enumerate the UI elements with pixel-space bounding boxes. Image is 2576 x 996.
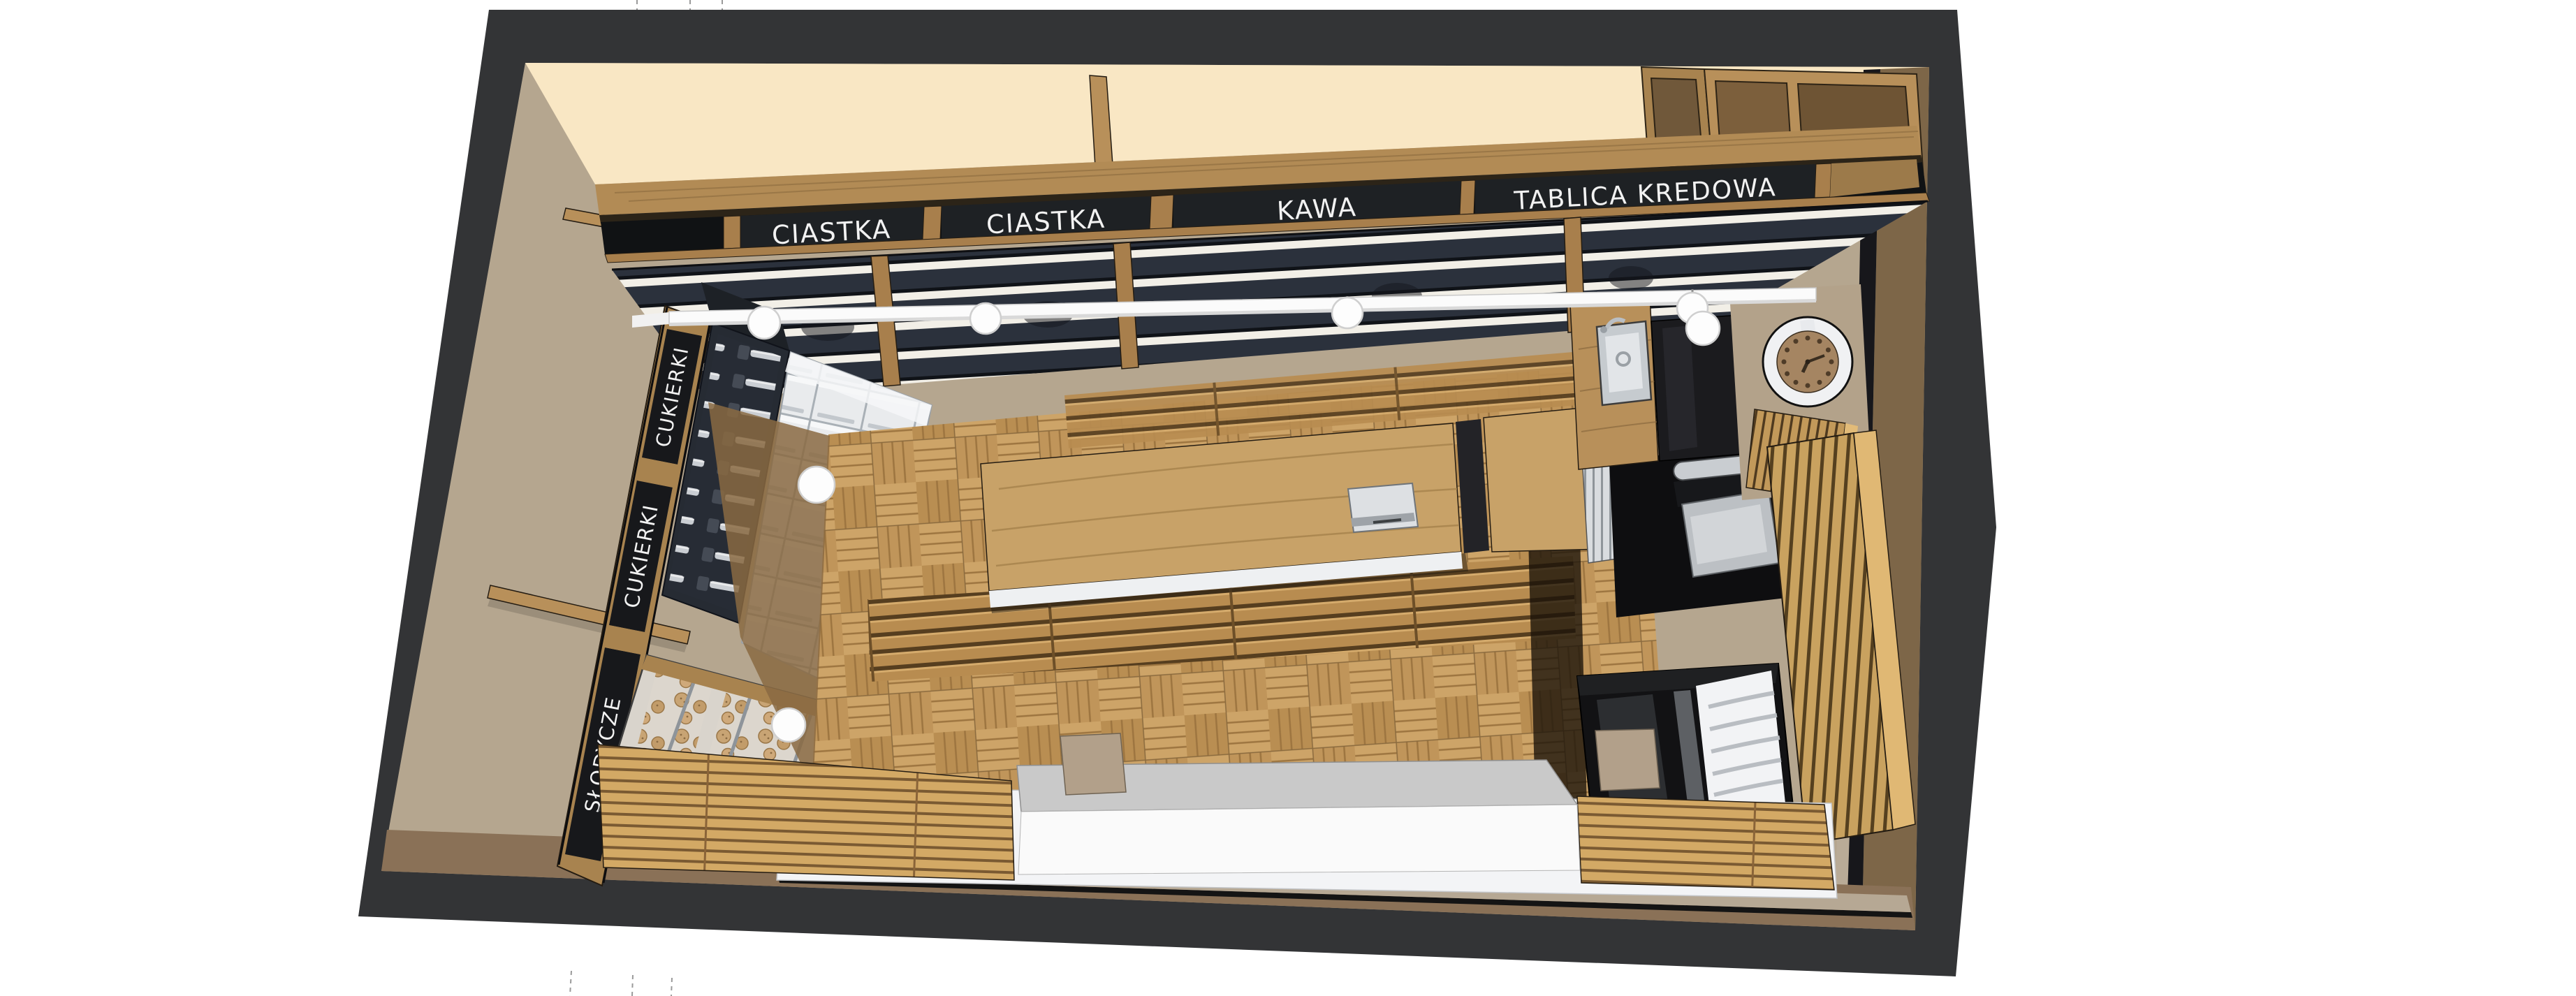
pos-terminal (1348, 483, 1418, 532)
sign-post (1815, 163, 1831, 198)
sign-post (724, 216, 740, 249)
sign-post (923, 206, 942, 240)
globe-light (970, 303, 1001, 334)
interior-3d-scene: CIASTKA CIASTKA KAWA TABLICA KREDOWA CUK… (0, 0, 2576, 996)
sign-post (1460, 180, 1475, 214)
bench-block-left (1060, 733, 1126, 795)
bench-right (1577, 796, 1834, 890)
sink (1597, 320, 1651, 405)
sink-area (1570, 296, 1759, 469)
sign-post (1150, 195, 1173, 229)
globe-light-left-2 (772, 708, 805, 742)
wall-clock (1763, 317, 1852, 407)
globe-light (1332, 298, 1363, 328)
render-canvas: CIASTKA CIASTKA KAWA TABLICA KREDOWA CUK… (0, 0, 2576, 996)
globe-light-left-1 (798, 467, 835, 503)
entry-step-front (1018, 805, 1580, 874)
globe-light (748, 307, 780, 339)
globe-light-sink (1686, 312, 1720, 345)
bench-block-right (1595, 729, 1660, 791)
